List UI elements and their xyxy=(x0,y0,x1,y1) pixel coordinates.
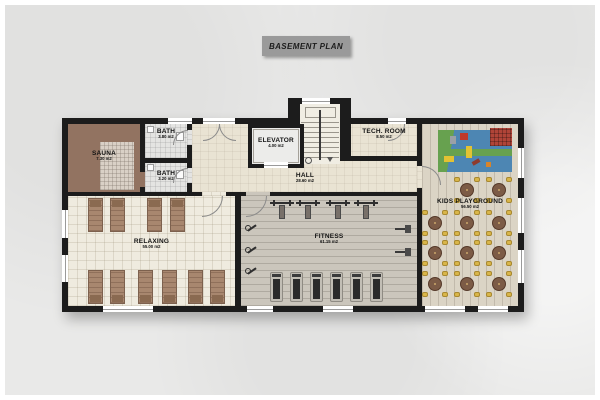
kids-table xyxy=(420,208,450,238)
stair-down-marker xyxy=(327,157,333,162)
treadmill xyxy=(370,272,383,302)
kids-table xyxy=(452,269,482,299)
window-top-1 xyxy=(168,118,192,124)
window-right-2 xyxy=(518,198,524,233)
window-right-3 xyxy=(518,250,524,283)
treadmill xyxy=(350,272,363,302)
cable-machine xyxy=(395,247,411,257)
wall-bath-divider xyxy=(145,158,187,163)
window-bottom-2 xyxy=(247,306,273,312)
kids-playground-label: KIDS PLAYGROUND56.50 m2 xyxy=(422,198,518,211)
wall-stair-right xyxy=(340,98,351,161)
window-bottom-1 xyxy=(103,306,153,312)
lounger xyxy=(88,270,103,304)
play-block xyxy=(472,158,481,165)
elevator-door xyxy=(264,162,288,168)
hall-label: HALL28.60 m2 xyxy=(255,172,355,185)
kids-table xyxy=(452,208,482,238)
lounger xyxy=(147,198,162,232)
lounger xyxy=(110,270,125,304)
bench-press xyxy=(354,200,378,220)
treadmill xyxy=(270,272,283,302)
bath-bottom-label: BATH3.20 m2 xyxy=(145,170,187,183)
lounger xyxy=(188,270,203,304)
plan-title: BASEMENT PLAN xyxy=(269,42,343,51)
lounger xyxy=(138,270,153,304)
treadmill xyxy=(290,272,303,302)
stair-divider xyxy=(319,110,321,160)
treadmill xyxy=(310,272,323,302)
plan-title-box: BASEMENT PLAN xyxy=(262,36,350,56)
kids-table xyxy=(452,238,482,268)
window-left-1 xyxy=(62,210,68,238)
window-right-1 xyxy=(518,148,524,178)
play-block xyxy=(444,156,454,162)
bench-press xyxy=(296,200,320,220)
kids-table xyxy=(484,238,514,268)
play-block xyxy=(466,146,472,158)
bench-press xyxy=(270,200,294,220)
window-bottom-4 xyxy=(425,306,465,312)
window-bottom-3 xyxy=(323,306,353,312)
wall-tech-bottom xyxy=(340,156,422,161)
play-block xyxy=(450,136,456,144)
wall-relax-fitness xyxy=(235,196,241,306)
play-block xyxy=(486,162,491,167)
lounger xyxy=(210,270,225,304)
lounger xyxy=(88,198,103,232)
window-left-2 xyxy=(62,255,68,282)
floor-plan-scene: BASEMENT PLAN xyxy=(0,0,600,400)
lounger xyxy=(162,270,177,304)
shoulder-press-machine xyxy=(245,265,258,277)
kids-table xyxy=(420,238,450,268)
play-block xyxy=(460,133,468,140)
tech-room-label: TECH. ROOM8.50 m2 xyxy=(351,128,417,141)
elevator-label: ELEVATOR4.00 m2 xyxy=(248,137,304,150)
climbing-structure xyxy=(490,128,512,146)
stair-window xyxy=(302,98,330,104)
window-bottom-5 xyxy=(478,306,508,312)
bench-press xyxy=(326,200,350,220)
fitness-label: FITNESS61.15 m2 xyxy=(241,233,417,246)
kids-table xyxy=(420,269,450,299)
lounger xyxy=(170,198,185,232)
bath-top-label: BATH3.80 m2 xyxy=(145,128,187,141)
kids-table xyxy=(484,269,514,299)
wall-hall-lower xyxy=(62,192,422,196)
sauna-label: SAUNA7.30 m2 xyxy=(68,150,140,163)
stair-up-marker xyxy=(305,157,312,164)
lounger xyxy=(110,198,125,232)
building: SAUNA7.30 m2 BATH3.80 m2 BATH3.20 m2 ELE… xyxy=(62,98,524,312)
treadmill xyxy=(330,272,343,302)
relaxing-label: RELAXING55.00 m2 xyxy=(68,238,235,251)
kids-table xyxy=(484,208,514,238)
